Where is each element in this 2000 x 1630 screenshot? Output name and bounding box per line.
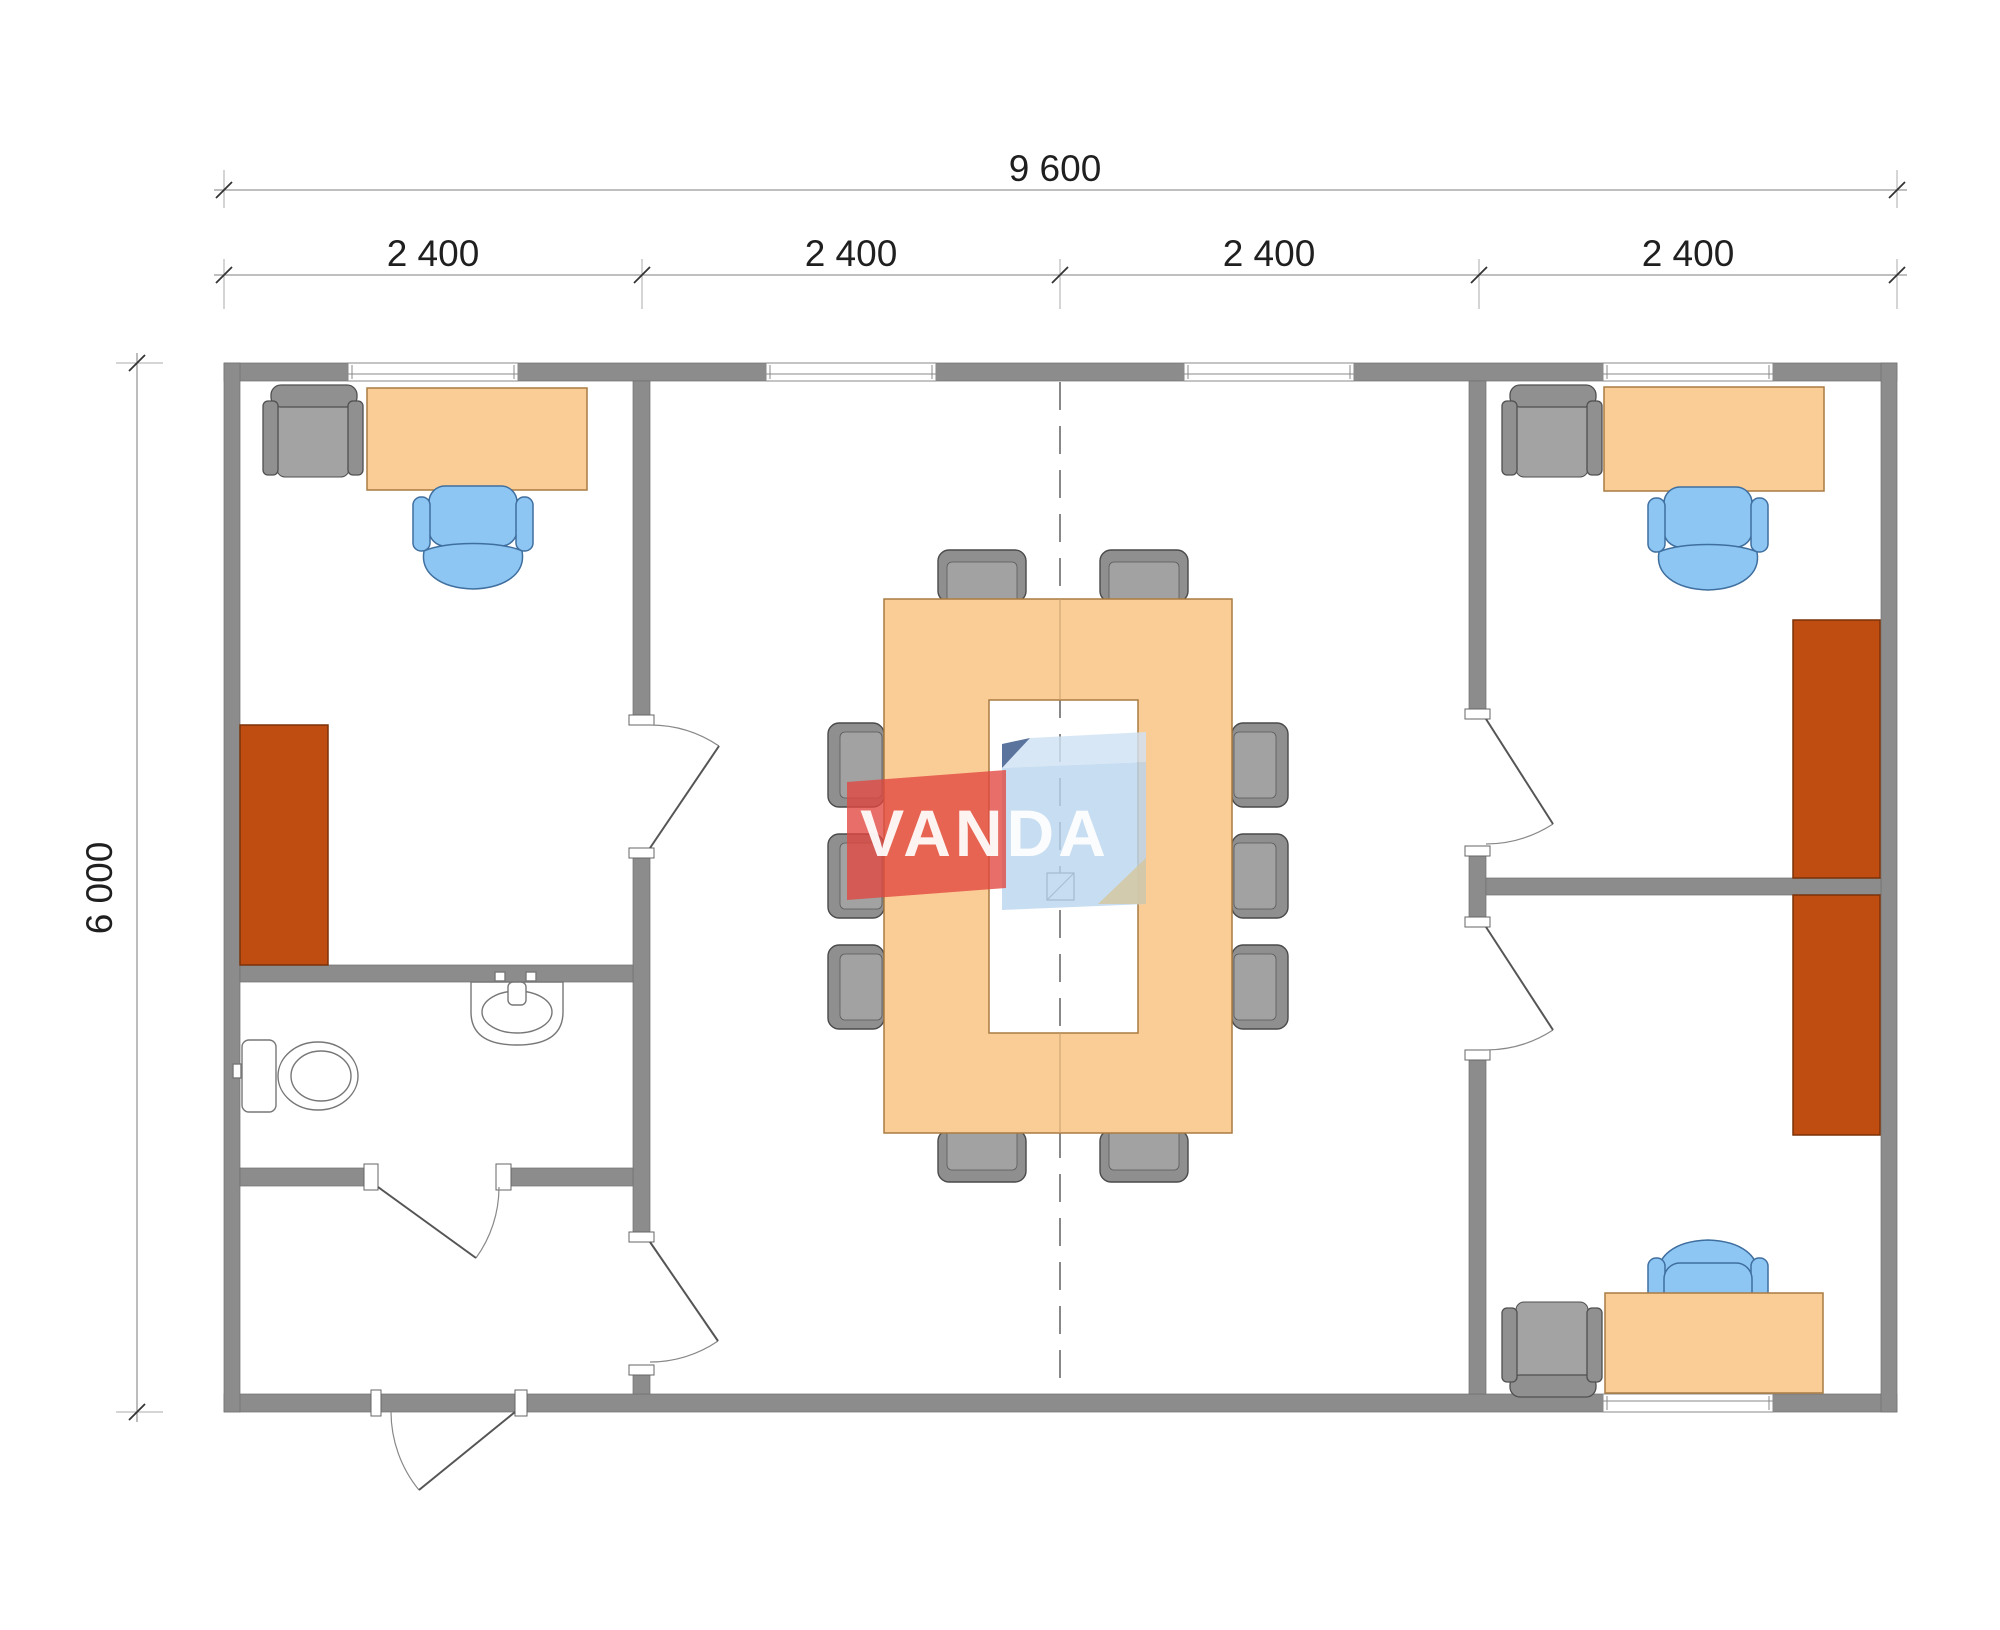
meeting-chair: [1100, 550, 1188, 604]
meeting-chair: [1232, 945, 1288, 1029]
exterior-wall-left: [224, 363, 240, 1412]
visitor-chair: [1502, 1302, 1602, 1397]
window: [1603, 1394, 1773, 1412]
window: [1184, 363, 1354, 381]
logo-wordmark: VANDA: [860, 796, 1110, 870]
window: [348, 363, 518, 381]
bathroom-wall-bottom-right: [511, 1168, 633, 1186]
interior-wall-right-middle: [1469, 856, 1486, 917]
logo-fold-top: [1002, 732, 1146, 768]
right-offices-divider-wall: [1486, 878, 1881, 895]
interior-wall-left-middle: [633, 858, 650, 1232]
bathroom-wall-bottom-left: [240, 1168, 364, 1186]
dimension-label-height: 6 000: [79, 842, 120, 935]
visitor-chair: [263, 385, 363, 477]
door-office-2: [1465, 709, 1553, 856]
interior-wall-right-upper: [1469, 381, 1486, 709]
interior-wall-left-upper: [633, 381, 650, 715]
meeting-chair: [1232, 723, 1288, 807]
office-bottom-right: [1502, 895, 1880, 1397]
office-chair: [1648, 487, 1768, 590]
dimension-label-module-1: 2 400: [387, 233, 480, 274]
dimension-label-module-2: 2 400: [805, 233, 898, 274]
bathroom-wall-top: [240, 965, 633, 982]
dimension-label-total-width: 9 600: [1009, 148, 1102, 189]
meeting-chair: [1100, 1128, 1188, 1182]
window: [1603, 363, 1773, 381]
window: [766, 363, 936, 381]
bathroom: [233, 972, 563, 1112]
office-top-left: [240, 385, 587, 965]
dimension-label-module-3: 2 400: [1223, 233, 1316, 274]
floor-plan-page: 9 600 2 400 2 400 2 400 2 400 6 000: [0, 0, 2000, 1630]
dimension-label-module-4: 2 400: [1642, 233, 1735, 274]
visitor-chair: [1502, 385, 1602, 477]
cabinet: [240, 725, 328, 965]
desk: [1604, 387, 1824, 491]
meeting-chair: [938, 550, 1026, 604]
interior-wall-left-lower: [633, 1375, 650, 1394]
door-bathroom: [364, 1164, 511, 1258]
office-chair: [413, 486, 533, 589]
door-office-1: [629, 715, 719, 858]
desk: [367, 388, 587, 490]
door-office-3: [1465, 917, 1553, 1060]
cabinet: [1793, 620, 1880, 878]
door-hall-meeting: [629, 1232, 718, 1375]
interior-wall-right-lower: [1469, 1060, 1486, 1394]
office-top-right: [1502, 385, 1880, 878]
floor-plan-canvas: 9 600 2 400 2 400 2 400 2 400 6 000: [0, 0, 2000, 1630]
cabinet: [1793, 895, 1880, 1135]
meeting-chair: [938, 1128, 1026, 1182]
meeting-chair: [1232, 834, 1288, 918]
meeting-chair: [828, 945, 884, 1029]
sink: [471, 972, 563, 1045]
exterior-wall-right: [1881, 363, 1897, 1412]
desk: [1605, 1293, 1823, 1393]
toilet: [233, 1040, 358, 1112]
